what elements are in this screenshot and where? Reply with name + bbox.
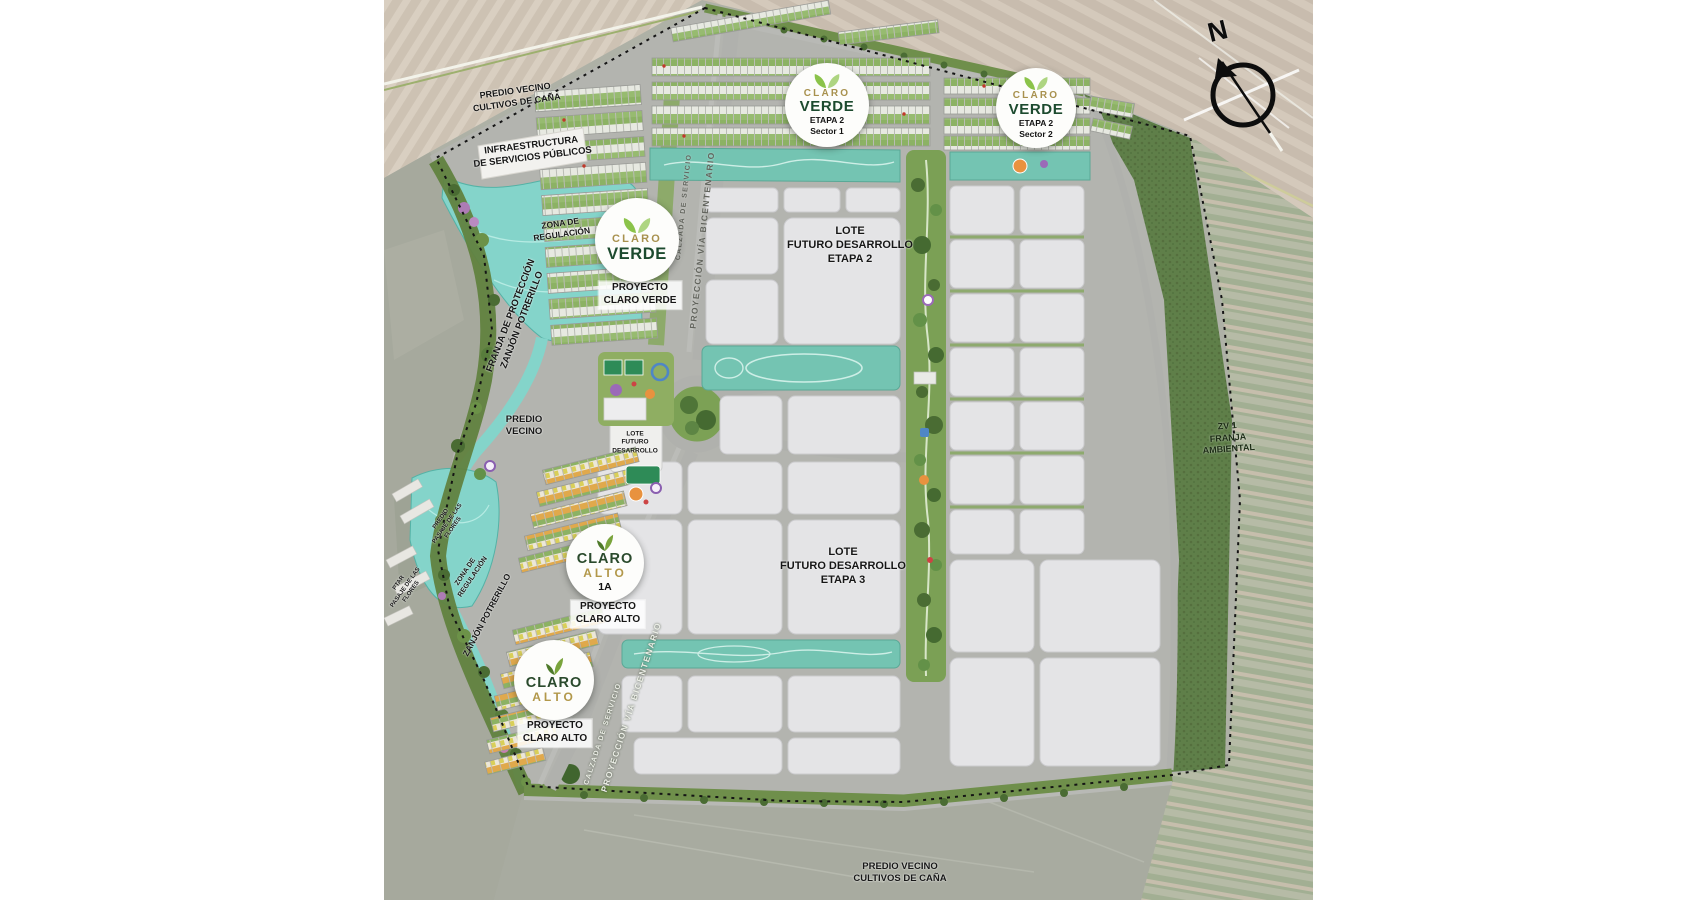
playground-icon [1013,159,1027,173]
label-proyecto-claro-alto-upper: PROYECTO CLARO ALTO [571,600,645,628]
badge-claro-alto-main: CLARO ALTO [514,640,594,720]
label-lote-futuro-mini: LOTE FUTURO DESARROLLO [612,431,658,456]
badge-etapa: ETAPA 2 [810,115,844,126]
sport-court [604,360,622,375]
claro-verde-logo-icon [1022,76,1050,90]
playground-icon [629,487,643,501]
label-lote-etapa3: LOTE FUTURO DESARROLLO ETAPA 3 [780,545,906,587]
sport-court [625,360,643,375]
badge-claro-verde-main: CLARO VERDE [595,198,679,282]
label-proyecto-claro-alto-lower: PROYECTO CLARO ALTO [518,719,592,747]
label-proyecto-claro-verde: PROYECTO CLARO VERDE [599,281,682,309]
brand-claro: CLARO [526,675,583,692]
masterplan-page: PREDIO VECINO CULTIVOS DE CAÑA INFRAESTR… [0,0,1701,900]
sport-field [626,466,660,484]
park-icon-blue [920,428,929,437]
label-predio-vecino-left: PREDIO VECINO [506,414,542,438]
flowering-tree [458,202,470,214]
brand-alto: ALTO [532,691,576,704]
badge-claro-alto-1a: CLARO ALTO 1A [566,524,644,602]
label-lote-etapa2: LOTE FUTURO DESARROLLO ETAPA 2 [787,224,913,266]
badge-sector: Sector 1 [810,126,844,137]
amenity-building [604,398,646,420]
brand-verde: VERDE [800,99,855,115]
flowering-tree [438,592,446,600]
badge-claro-verde-sector1: CLARO VERDE ETAPA 2 Sector 1 [785,63,869,147]
brand-alto: ALTO [583,567,627,580]
badge-etapa: ETAPA 2 [1019,118,1053,129]
claro-verde-logo-icon [621,217,653,233]
park-icon-orange [919,475,929,485]
amenity-cluster-central [598,352,674,426]
label-zv1-franja-ambiental: ZV 1 FRANJA AMBIENTAL [1201,419,1256,457]
park-icon-purple [923,295,933,305]
claro-verde-logo-icon [812,73,842,88]
brand-claro: CLARO [577,551,634,568]
park-court [914,372,936,384]
badge-claro-verde-sector2: CLARO VERDE ETAPA 2 Sector 2 [996,68,1076,148]
badge-stage: 1A [598,581,611,593]
brand-verde: VERDE [607,246,667,263]
brand-claro: CLARO [612,233,662,246]
flowering-tree [469,217,479,227]
claro-alto-logo-icon [544,656,565,675]
brand-verde: VERDE [1009,102,1064,118]
claro-alto-logo-icon [595,533,615,551]
site-plan-map: PREDIO VECINO CULTIVOS DE CAÑA INFRAESTR… [384,0,1313,900]
badge-sector: Sector 2 [1019,129,1053,140]
label-predio-vecino-bottom: PREDIO VECINO CULTIVOS DE CAÑA [853,861,946,885]
